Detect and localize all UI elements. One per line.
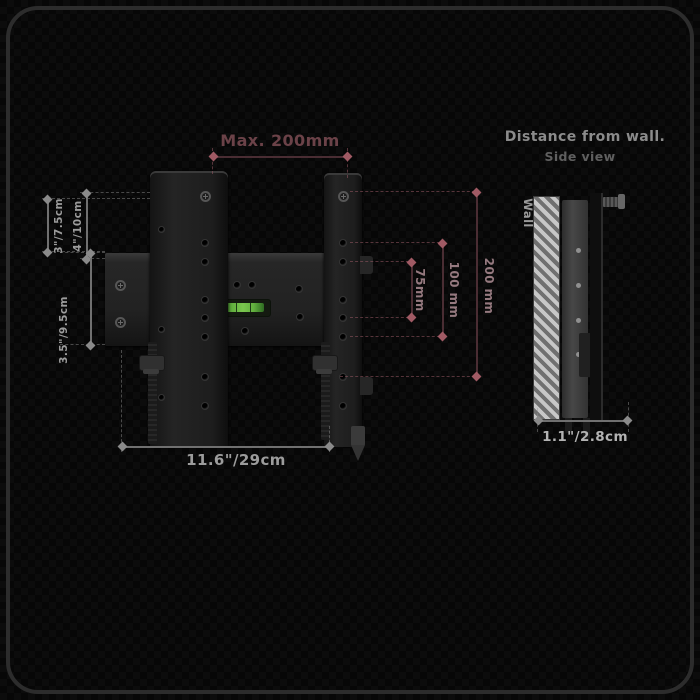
tv-arm-profile xyxy=(590,193,603,422)
side-view: Distance from wall. Side view Wall 1.1"/… xyxy=(0,0,700,700)
wall-mount-dimension-diagram: Max. 200mm 200 mm 100 mm 75mm 3"/7.5cm 4 xyxy=(0,0,700,700)
side-dim-label: 1.1"/2.8cm xyxy=(510,429,660,445)
bracket-profile xyxy=(562,200,588,418)
wall-cross-section xyxy=(533,196,560,420)
profile-screw-dot xyxy=(576,248,581,253)
side-view-title: Distance from wall. xyxy=(495,129,675,145)
adjustment-screw-shaft xyxy=(603,197,619,207)
dim-arrow xyxy=(623,416,633,426)
side-view-subtitle: Side view xyxy=(497,149,663,164)
adjustment-screw-head xyxy=(618,194,625,209)
profile-screw-dot xyxy=(576,283,581,288)
side-dim-line xyxy=(538,420,630,422)
profile-screw-dot xyxy=(576,318,581,323)
